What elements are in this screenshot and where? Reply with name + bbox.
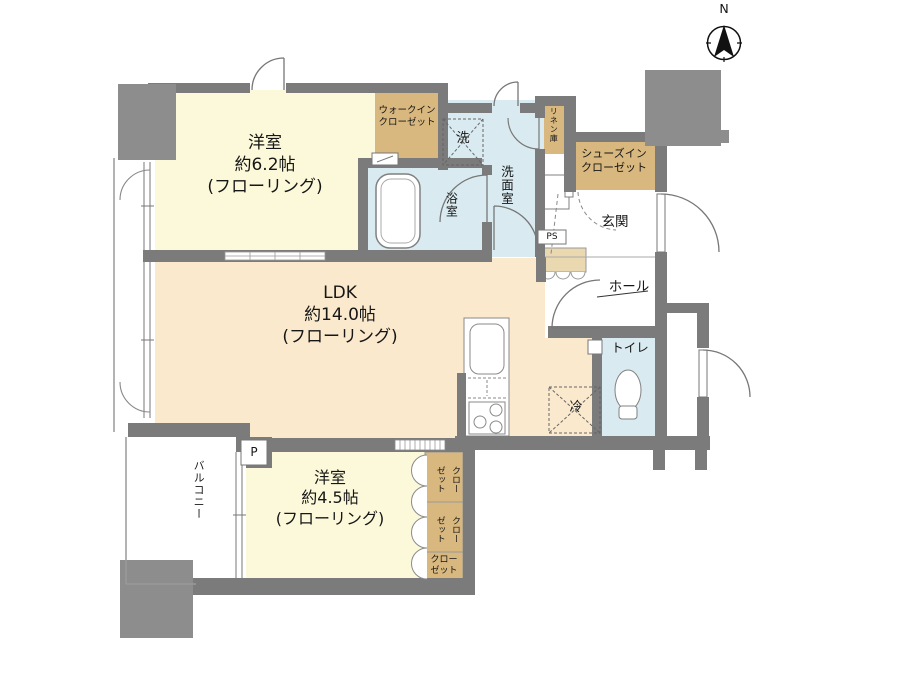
- kitchen-stove: [469, 402, 505, 434]
- label-entrance: 玄関: [580, 214, 650, 231]
- label-washroom: 洗面室: [498, 165, 514, 206]
- bathtub: [376, 174, 420, 248]
- door-bedroom1-top: [252, 58, 284, 90]
- bedroom2-size: 約4.5帖: [235, 488, 425, 508]
- label-bedroom1: 洋室 約6.2帖 (フローリング): [165, 133, 365, 198]
- label-closet-bottom: クロー ゼット: [426, 555, 462, 577]
- label-pipe-duct: P: [246, 445, 262, 460]
- bedroom1-size: 約6.2帖: [165, 155, 365, 177]
- compass-n-label: N: [716, 1, 732, 17]
- front-door-swing: [661, 194, 719, 252]
- pillar-top-right-notch: [721, 130, 729, 143]
- toilet-base: [619, 406, 637, 419]
- label-ldk: LDK 約14.0帖 (フローリング): [230, 283, 450, 348]
- pillar-top-right: [645, 70, 721, 146]
- bedroom1-name: 洋室: [165, 133, 365, 155]
- north-compass: [706, 25, 742, 62]
- label-pipe-space: PS: [540, 232, 564, 244]
- label-shoes-in-closet: シューズイン クローゼット: [574, 147, 654, 175]
- bedroom1-floor: (フローリング): [165, 177, 365, 199]
- door-hall-ldk: [552, 280, 600, 328]
- sic-line2: クローゼット: [574, 161, 654, 175]
- label-closet-middle: クロー ゼット: [428, 506, 462, 552]
- closet-top-col1: クロー: [447, 456, 462, 502]
- ldk-floor: (フローリング): [230, 327, 450, 349]
- shoe-cabinet: [540, 248, 586, 272]
- shoe-cabinet-scallops: [541, 272, 585, 279]
- bedroom2-name: 洋室: [235, 468, 425, 488]
- kitchen-sink: [470, 324, 504, 374]
- closet-bottom-line2: ゼット: [426, 566, 462, 577]
- label-balcony: バルコニー: [191, 460, 205, 520]
- sic-line1: シューズイン: [574, 147, 654, 161]
- ldk-name: LDK: [230, 283, 450, 305]
- label-washer: 洗: [452, 131, 474, 148]
- label-toilet: トイレ: [607, 340, 653, 356]
- label-bath: 浴室: [443, 192, 458, 218]
- closet-middle-col1: クロー: [447, 506, 462, 552]
- closet-top-col2: ゼット: [431, 456, 446, 502]
- label-bedroom2: 洋室 約4.5帖 (フローリング): [235, 468, 425, 529]
- label-closet-top: クロー ゼット: [428, 456, 462, 502]
- sliding-door-bedroom1: [225, 252, 325, 260]
- closet-bottom-line1: クロー: [426, 555, 462, 566]
- bedroom2-floor: (フローリング): [235, 509, 425, 529]
- label-fridge: 冷: [563, 400, 589, 417]
- wic-line1: ウォークイン: [375, 105, 439, 117]
- wic-line2: クローゼット: [375, 117, 439, 129]
- shaft-door-leaf: [699, 350, 707, 397]
- closet-middle-col2: ゼット: [431, 506, 446, 552]
- label-walk-in-closet: ウォークイン クローゼット: [375, 105, 439, 129]
- label-linen: リネン庫: [548, 107, 558, 143]
- sliding-hatch-bedroom2: [395, 440, 445, 450]
- pillar-bottom-left: [120, 560, 193, 638]
- window-bedroom1: [141, 162, 154, 250]
- ldk-size: 約14.0帖: [230, 305, 450, 327]
- label-hall: ホール: [599, 279, 659, 296]
- toilet-bowl: [615, 370, 641, 410]
- window-ldk: [141, 262, 154, 418]
- shaft-door-swing: [703, 350, 750, 397]
- toilet-control-box: [588, 340, 602, 354]
- floor-plan: N 洋室 約6.2帖 (フローリング) LDK 約14.0帖 (フローリング) …: [0, 0, 916, 677]
- front-door-leaf: [657, 194, 665, 252]
